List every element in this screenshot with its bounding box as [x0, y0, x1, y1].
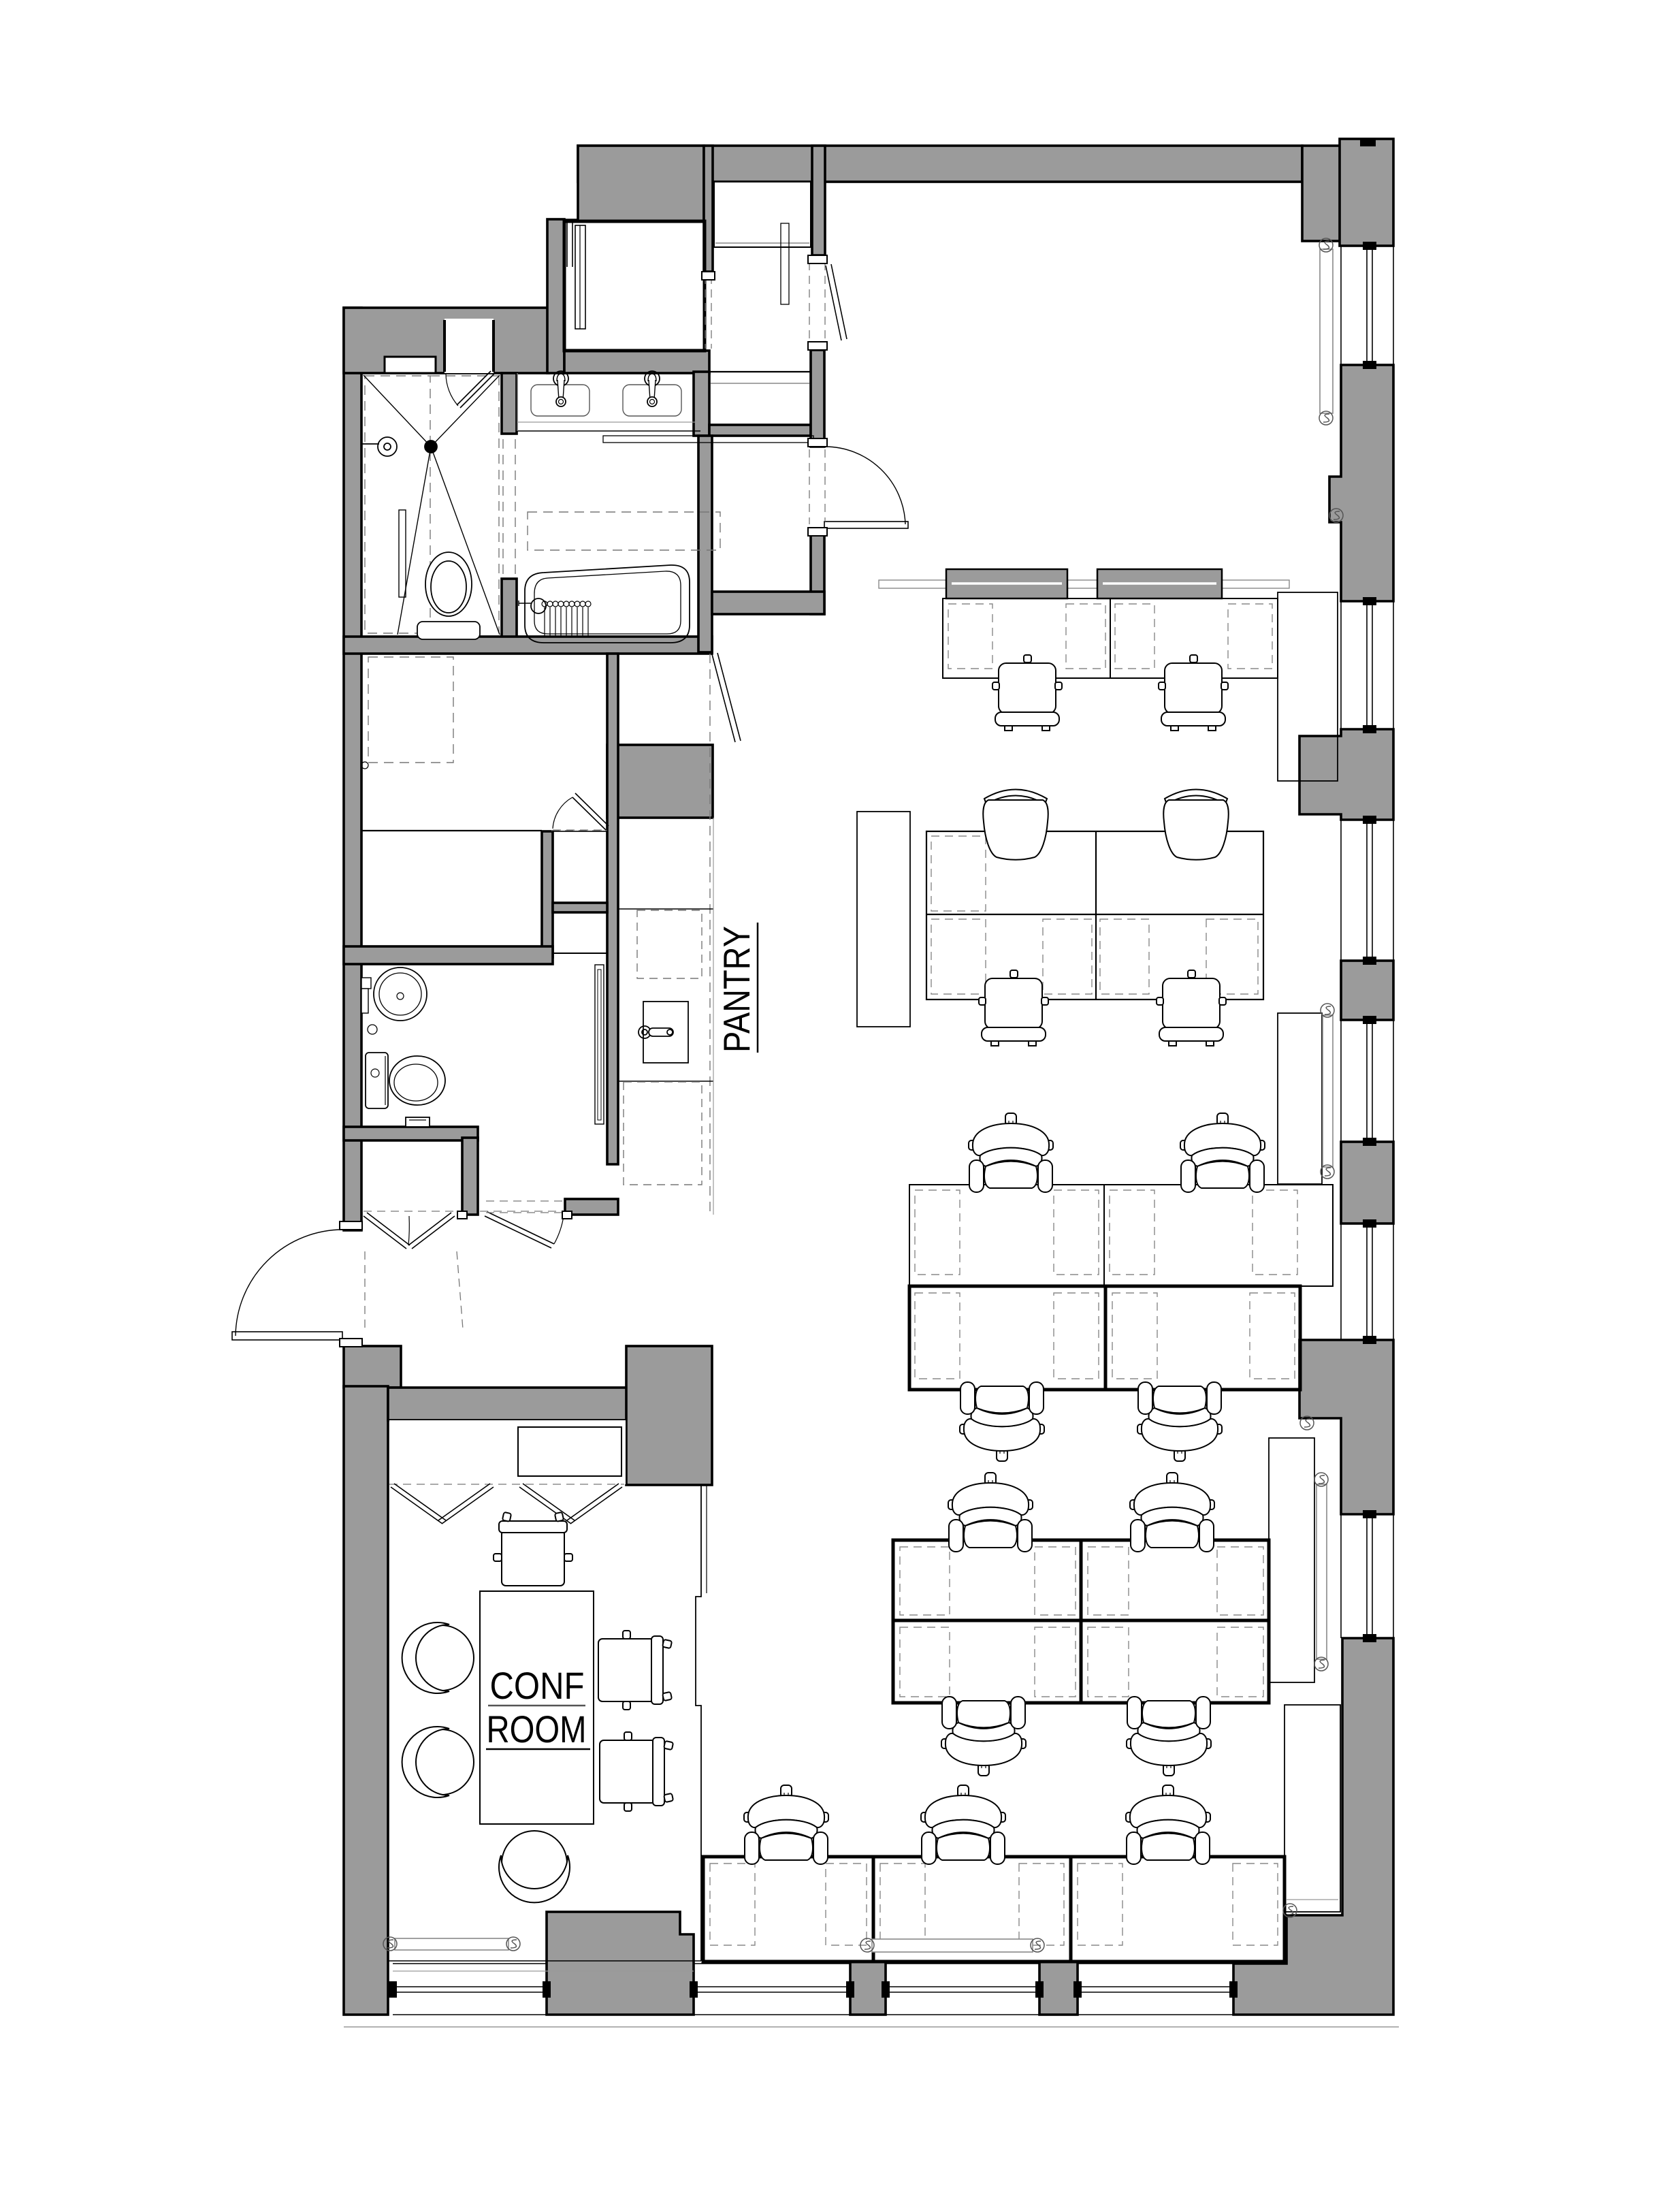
svg-text:CONF: CONF	[490, 1664, 585, 1707]
svg-text:PANTRY: PANTRY	[715, 926, 758, 1053]
svg-text:ROOM: ROOM	[487, 1708, 587, 1750]
